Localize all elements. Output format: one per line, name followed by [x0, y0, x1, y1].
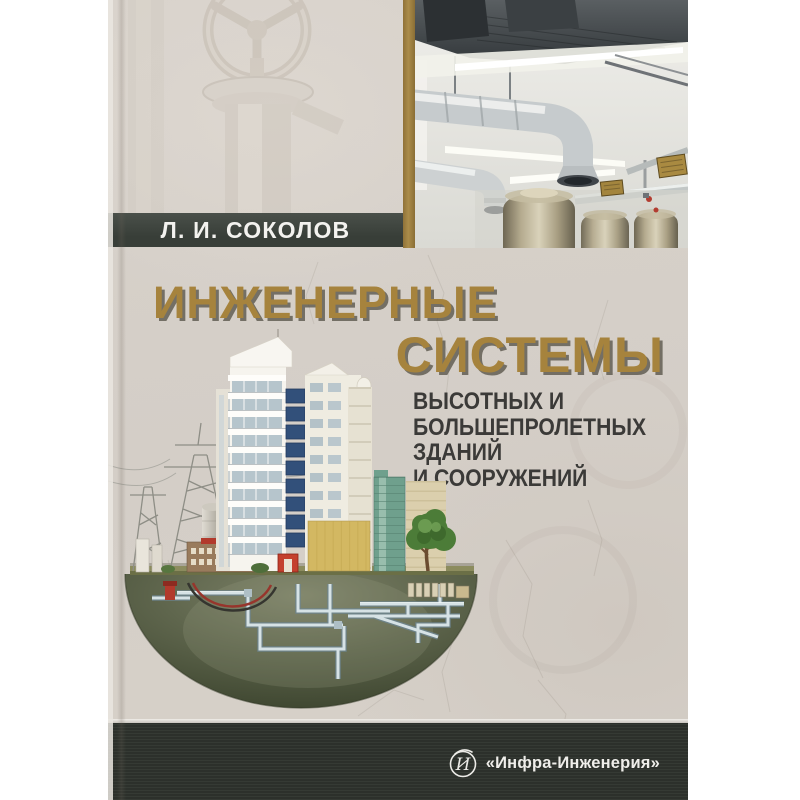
valve-ghost-graphic	[128, 0, 344, 235]
book-cover: Л. И. СОКОЛОВ ИНЖЕНЕРНЫЕ СИСТЕМЫ ВЫСОТНЫ…	[108, 0, 688, 800]
cover-edge-highlight	[108, 0, 113, 800]
author-name: Л. И. СОКОЛОВ	[161, 217, 351, 244]
publisher-logo-letter: И	[454, 755, 471, 775]
gold-stripe	[403, 0, 415, 248]
fire-hydrant	[163, 581, 177, 600]
author-bar: Л. И. СОКОЛОВ	[108, 213, 403, 247]
spine-crease	[117, 0, 126, 800]
publisher-bar: И «Инфра-Инженерия»	[108, 723, 688, 800]
boiler-room-photo	[415, 0, 688, 248]
building-illustration	[108, 325, 528, 715]
transformer-box	[278, 554, 298, 572]
publisher-logo-icon: И	[447, 746, 479, 780]
hemisphere	[125, 572, 477, 708]
glass-bay-column	[286, 389, 305, 547]
publisher-name: «Инфра-Инженерия»	[486, 754, 660, 773]
title-line-1: ИНЖЕНЕРНЫЕ	[153, 280, 498, 325]
publisher-lockup: И «Инфра-Инженерия»	[447, 745, 660, 781]
book-cover-photo: Л. И. СОКОЛОВ ИНЖЕНЕРНЫЕ СИСТЕМЫ ВЫСОТНЫ…	[0, 0, 800, 800]
bush	[161, 565, 175, 573]
bush	[251, 563, 269, 573]
main-building	[216, 329, 372, 572]
